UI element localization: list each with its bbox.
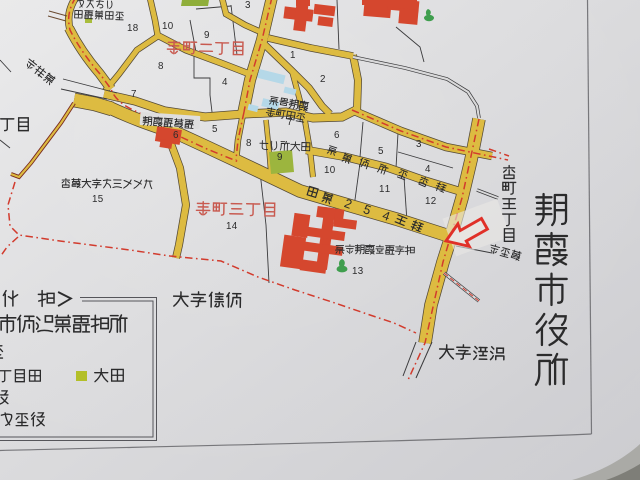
svg-text:6: 6 [173,130,179,141]
svg-text:8: 8 [158,61,164,72]
svg-text:4: 4 [222,77,228,88]
svg-text:1: 1 [352,266,357,277]
svg-text:1: 1 [324,165,329,176]
svg-text:9: 9 [204,30,209,41]
svg-text:5: 5 [98,194,104,205]
svg-text:3: 3 [358,266,364,277]
svg-text:1: 1 [226,221,231,232]
svg-text:4: 4 [232,221,238,232]
svg-text:8: 8 [246,138,252,149]
svg-text:5: 5 [378,146,384,157]
svg-text:1: 1 [385,184,390,195]
svg-text:1: 1 [127,23,132,34]
svg-text:2: 2 [431,196,436,207]
svg-text:1: 1 [425,196,430,207]
svg-text:3: 3 [416,139,422,150]
svg-text:8: 8 [133,23,139,34]
svg-text:9: 9 [277,152,282,163]
svg-text:0: 0 [168,21,174,32]
svg-text:1: 1 [162,21,167,32]
svg-text:5: 5 [212,124,218,135]
svg-text:1: 1 [92,194,97,205]
svg-text:3: 3 [245,0,251,11]
svg-text:6: 6 [334,130,340,141]
svg-text:7: 7 [287,117,292,128]
svg-text:4: 4 [425,164,431,175]
svg-text:1: 1 [290,50,295,61]
svg-text:0: 0 [330,165,336,176]
svg-text:1: 1 [379,184,384,195]
svg-text:2: 2 [320,74,325,85]
svg-text:7: 7 [131,89,136,100]
